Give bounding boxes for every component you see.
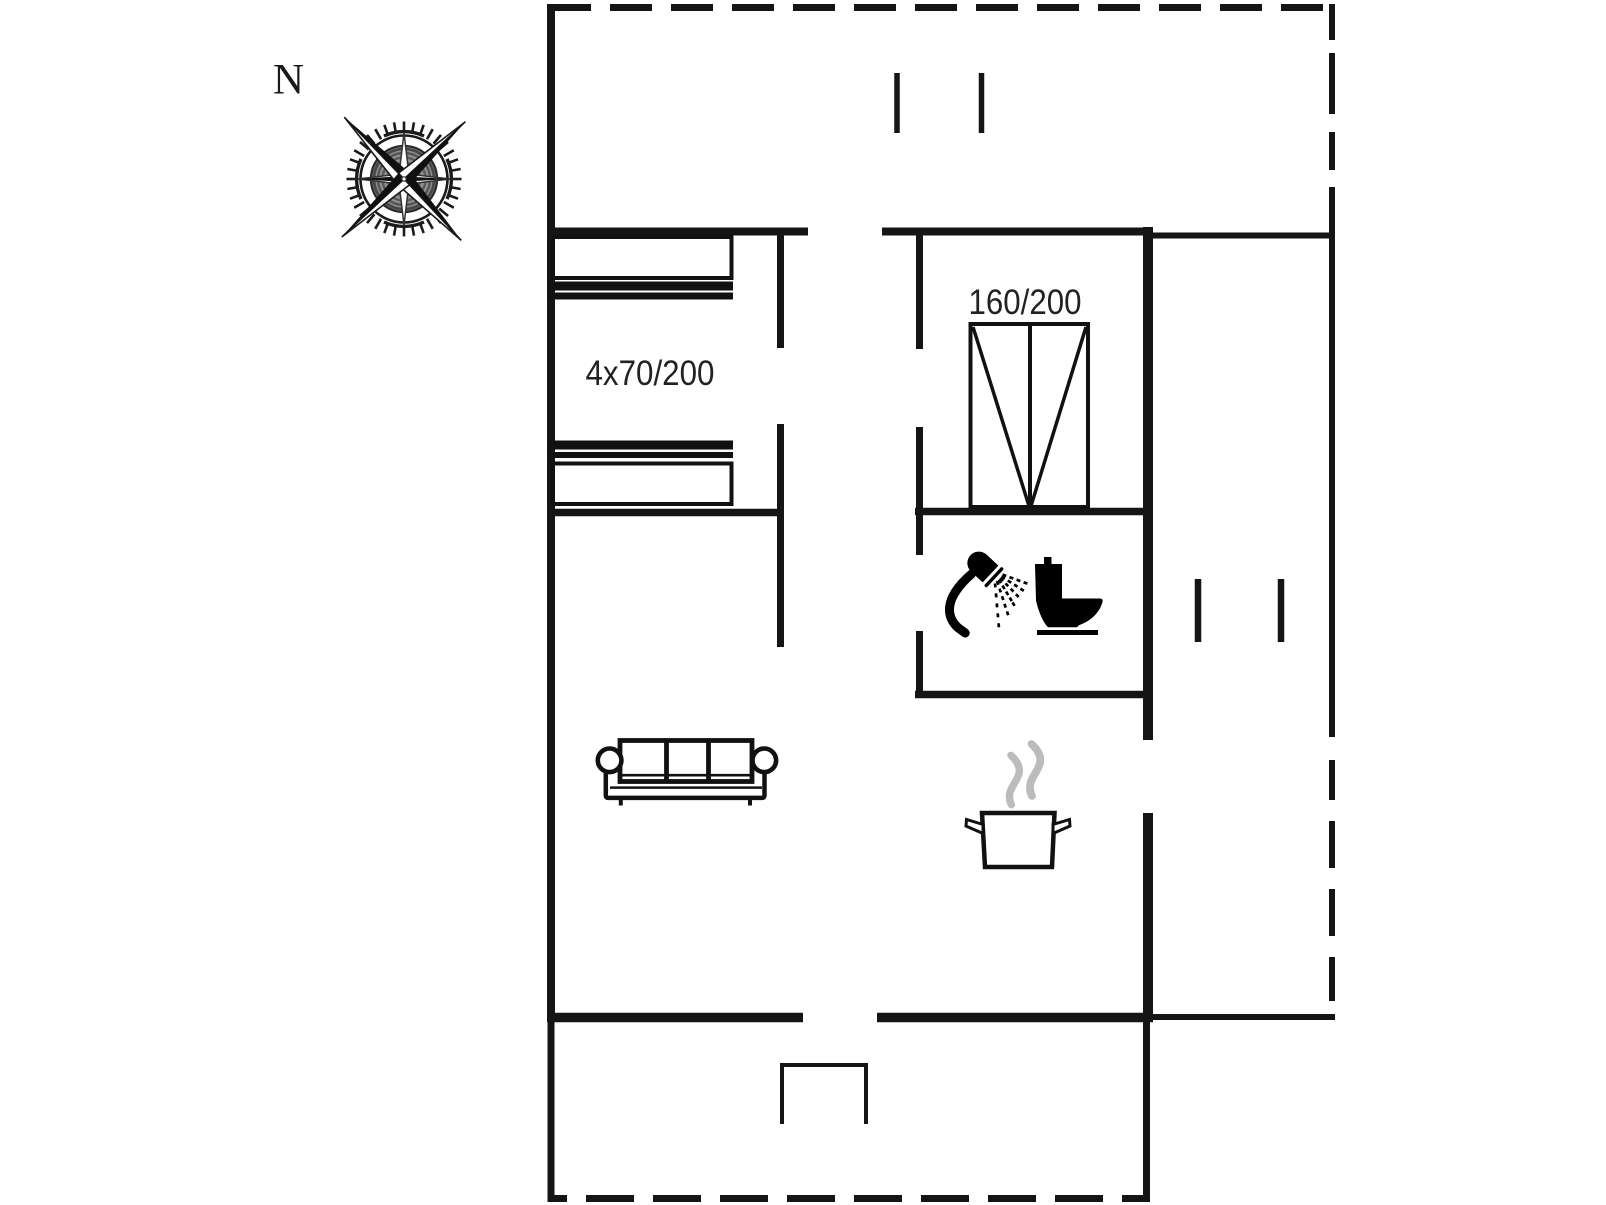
- svg-text:N: N: [273, 57, 304, 104]
- svg-text:160/200: 160/200: [969, 283, 1082, 322]
- svg-text:4x70/200: 4x70/200: [586, 354, 715, 393]
